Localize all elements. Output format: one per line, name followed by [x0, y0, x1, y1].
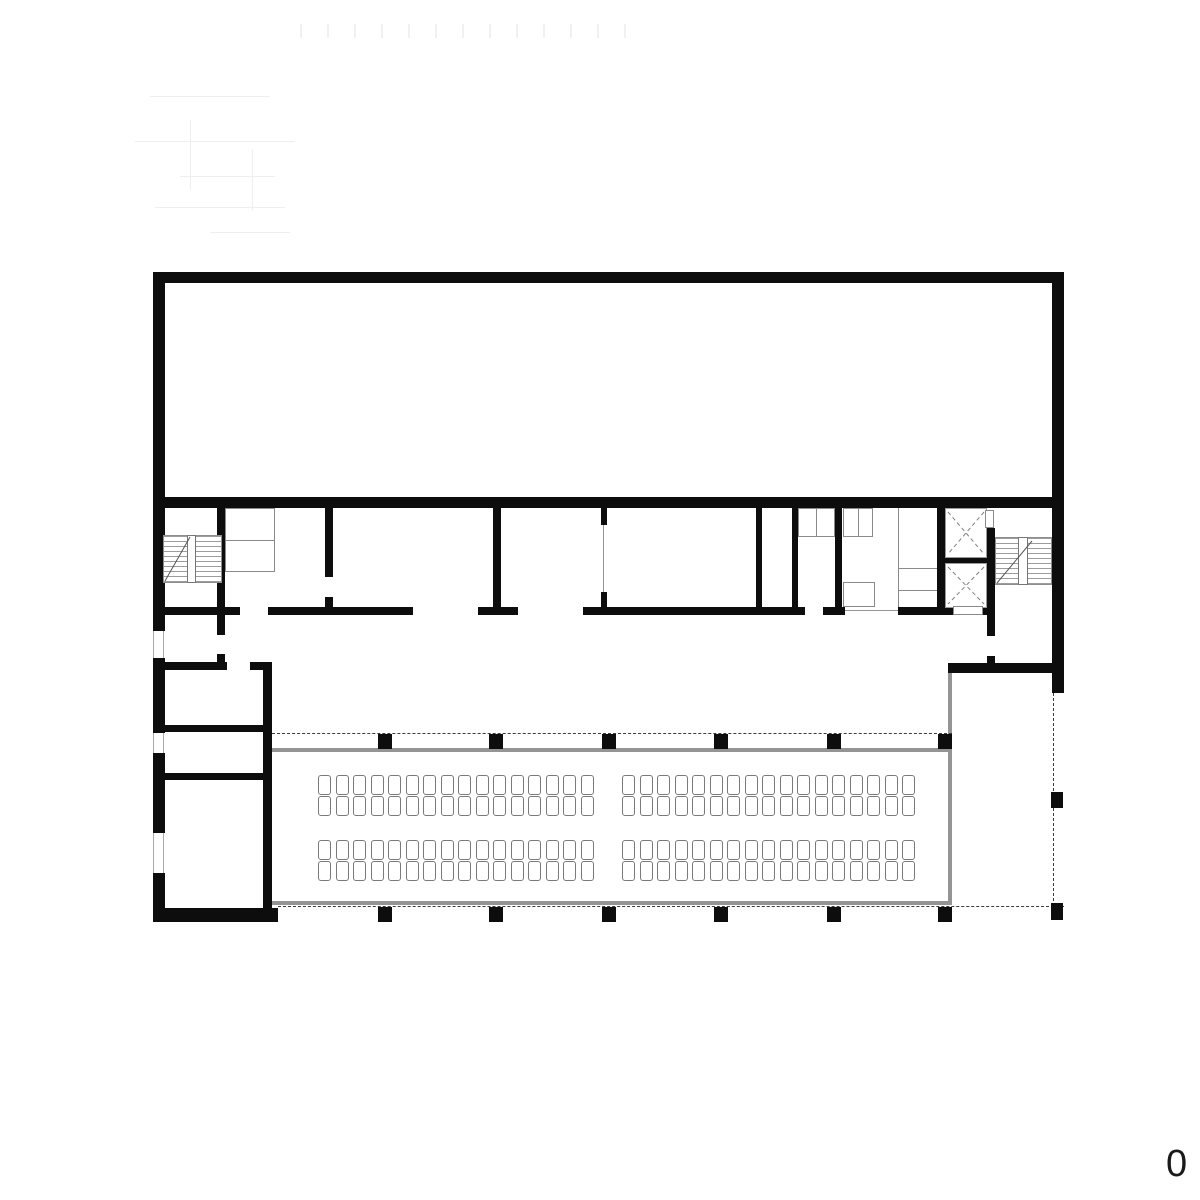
seat — [710, 796, 723, 816]
wall-outer-left — [153, 753, 165, 833]
seat — [528, 840, 541, 860]
seat — [353, 775, 366, 795]
pillar — [714, 907, 728, 922]
pillar — [378, 734, 392, 749]
wall-segment — [835, 508, 842, 607]
seat — [850, 861, 863, 881]
auditorium-right-line — [948, 673, 952, 905]
seat — [815, 796, 828, 816]
seat — [797, 775, 810, 795]
wc-stall-divider — [898, 568, 937, 569]
seat — [657, 796, 670, 816]
pillar — [378, 907, 392, 922]
seat — [493, 861, 506, 881]
seat — [762, 861, 775, 881]
seat — [675, 775, 688, 795]
wardrobe-divider — [225, 540, 275, 541]
seat — [640, 840, 653, 860]
seat — [563, 796, 576, 816]
wc-stall-wall — [898, 508, 899, 607]
seat — [727, 840, 740, 860]
seat — [353, 861, 366, 881]
seat — [622, 775, 635, 795]
seat — [458, 840, 471, 860]
seat — [727, 775, 740, 795]
seat — [657, 840, 670, 860]
wall-hall-bottom — [153, 497, 1064, 508]
seat — [406, 840, 419, 860]
seat — [850, 775, 863, 795]
seat — [371, 775, 384, 795]
seat — [692, 775, 705, 795]
seat — [902, 861, 915, 881]
seat — [675, 796, 688, 816]
pillar — [714, 734, 728, 749]
seat — [867, 796, 880, 816]
seat — [406, 775, 419, 795]
seat — [832, 861, 845, 881]
seat — [336, 775, 349, 795]
seat — [797, 861, 810, 881]
interior-glazing — [603, 525, 604, 592]
seat — [727, 861, 740, 881]
seat — [867, 861, 880, 881]
seat — [832, 840, 845, 860]
seat — [780, 861, 793, 881]
seat — [640, 861, 653, 881]
seat — [441, 775, 454, 795]
floorplan: 0 — [0, 0, 1200, 1200]
window — [153, 833, 164, 873]
seat — [885, 775, 898, 795]
wall-outer-right — [1052, 272, 1064, 693]
seat — [815, 861, 828, 881]
seat — [493, 796, 506, 816]
ghost-sketch-line — [150, 96, 270, 97]
seat — [780, 775, 793, 795]
seat — [902, 796, 915, 816]
pillar — [602, 907, 616, 922]
wall-segment — [478, 607, 518, 615]
seat — [528, 796, 541, 816]
wall-outer-bottom-left — [153, 908, 278, 922]
pillar — [827, 907, 841, 922]
ghost-sketch-line — [135, 141, 295, 142]
seat — [318, 796, 331, 816]
wall-segment — [493, 508, 501, 607]
ghost-sketch-ticks — [300, 24, 650, 38]
wall-outer-left — [153, 658, 165, 733]
pillar — [1051, 792, 1063, 808]
seat — [640, 796, 653, 816]
seat — [622, 796, 635, 816]
elevator-door — [985, 510, 994, 528]
seat — [528, 861, 541, 881]
seat — [622, 840, 635, 860]
seat — [815, 775, 828, 795]
seat — [710, 840, 723, 860]
seat — [745, 840, 758, 860]
seat — [581, 840, 594, 860]
seat — [476, 796, 489, 816]
seat — [885, 796, 898, 816]
seat — [423, 775, 436, 795]
wall-segment — [987, 656, 995, 663]
pillar — [827, 734, 841, 749]
seat — [850, 796, 863, 816]
seat — [867, 840, 880, 860]
window — [153, 631, 164, 658]
pillar — [489, 907, 503, 922]
seat — [780, 840, 793, 860]
elevator-shaft-x-icon — [945, 508, 987, 558]
wall-segment — [756, 508, 762, 607]
seat — [762, 775, 775, 795]
wall-segment — [165, 662, 227, 670]
seat — [423, 796, 436, 816]
ghost-sketch-line — [252, 150, 253, 210]
wall-segment — [325, 597, 333, 607]
seat — [511, 796, 524, 816]
seat — [797, 840, 810, 860]
seat — [745, 861, 758, 881]
wall-segment — [601, 592, 607, 607]
stair-left-run-line — [163, 535, 222, 583]
wall-terrace-top — [948, 663, 1064, 673]
seat — [867, 775, 880, 795]
seat — [780, 796, 793, 816]
elevator-door — [953, 606, 983, 615]
seat — [336, 796, 349, 816]
seat — [528, 775, 541, 795]
pillar — [1051, 903, 1063, 920]
seat — [675, 861, 688, 881]
seat — [511, 775, 524, 795]
seat — [640, 775, 653, 795]
seat — [511, 861, 524, 881]
seat — [581, 861, 594, 881]
pillar — [938, 734, 952, 749]
seat — [546, 775, 559, 795]
seat — [476, 861, 489, 881]
seat — [745, 775, 758, 795]
window — [153, 733, 164, 753]
ghost-sketch-line — [210, 232, 290, 233]
wall-segment — [987, 528, 995, 636]
seat — [546, 840, 559, 860]
seat — [675, 840, 688, 860]
seat — [423, 861, 436, 881]
ghost-sketch — [0, 0, 700, 270]
seat — [657, 775, 670, 795]
seat — [563, 840, 576, 860]
wall-segment — [268, 607, 413, 615]
seat — [581, 775, 594, 795]
interior-glazing — [845, 610, 898, 611]
seat — [511, 840, 524, 860]
pillar — [938, 907, 952, 922]
wall-segment — [601, 508, 607, 525]
wall-segment — [163, 725, 272, 732]
seat — [581, 796, 594, 816]
seat — [692, 840, 705, 860]
seat — [423, 840, 436, 860]
seat — [832, 796, 845, 816]
wall-segment — [583, 607, 805, 615]
wall-segment — [163, 773, 272, 780]
wc-fixture-divider — [858, 508, 859, 537]
seat — [727, 796, 740, 816]
seat — [710, 861, 723, 881]
seat — [318, 840, 331, 860]
floor-number-label: 0 — [1166, 1143, 1187, 1186]
pillar — [489, 734, 503, 749]
seat — [441, 840, 454, 860]
seat — [336, 840, 349, 860]
wall-segment — [937, 508, 945, 615]
wall-segment — [165, 607, 240, 615]
seat — [458, 861, 471, 881]
seat — [563, 775, 576, 795]
wall-outer-top — [153, 272, 1064, 283]
seat — [371, 861, 384, 881]
wall-segment — [263, 662, 272, 908]
seat — [657, 861, 670, 881]
seat — [476, 840, 489, 860]
seat — [832, 775, 845, 795]
seat — [353, 840, 366, 860]
seat — [902, 775, 915, 795]
seat — [371, 840, 384, 860]
seat — [692, 796, 705, 816]
seat — [850, 840, 863, 860]
seat — [762, 796, 775, 816]
counter-divider — [816, 508, 817, 537]
wall-segment — [823, 607, 845, 615]
seat — [336, 861, 349, 881]
seat — [546, 796, 559, 816]
seat — [493, 775, 506, 795]
seat — [885, 861, 898, 881]
elevator-shaft-x-icon — [945, 563, 987, 608]
seat — [797, 796, 810, 816]
auditorium-bottom-line — [272, 901, 952, 905]
seat — [388, 775, 401, 795]
seat — [563, 861, 576, 881]
seat — [902, 840, 915, 860]
wc-stall-divider — [898, 590, 937, 591]
seat — [885, 840, 898, 860]
seat — [353, 796, 366, 816]
seat — [692, 861, 705, 881]
seat — [406, 796, 419, 816]
seat — [745, 796, 758, 816]
seat — [476, 775, 489, 795]
seat — [406, 861, 419, 881]
seat — [441, 796, 454, 816]
wall-segment — [325, 508, 333, 577]
seat — [622, 861, 635, 881]
seat — [388, 796, 401, 816]
ghost-sketch-line — [155, 207, 285, 208]
seat — [458, 796, 471, 816]
seat — [388, 861, 401, 881]
ghost-sketch-line — [180, 176, 275, 177]
seat — [388, 840, 401, 860]
ghost-sketch-line — [190, 120, 191, 190]
stair-right-run-line — [995, 537, 1052, 585]
seat — [458, 775, 471, 795]
seat — [762, 840, 775, 860]
seat — [318, 861, 331, 881]
seat — [546, 861, 559, 881]
pillar — [602, 734, 616, 749]
seat — [493, 840, 506, 860]
seat — [371, 796, 384, 816]
seat — [318, 775, 331, 795]
wc-fixture — [843, 582, 875, 607]
seat — [815, 840, 828, 860]
seat — [441, 861, 454, 881]
seat — [710, 775, 723, 795]
